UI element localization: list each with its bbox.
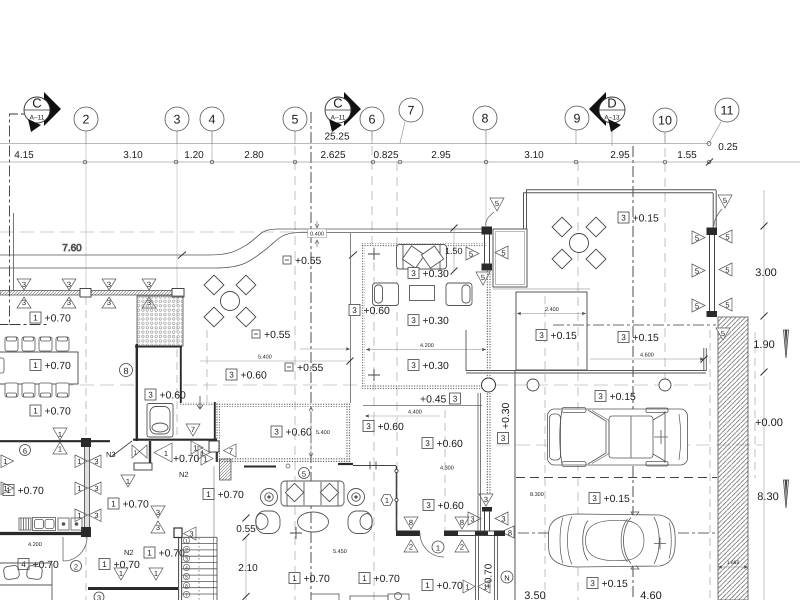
svg-text:1: 1 [185, 538, 188, 544]
svg-text:+0.70: +0.70 [45, 361, 72, 372]
svg-text:5: 5 [292, 113, 299, 127]
svg-text:+0.15: +0.15 [633, 214, 660, 225]
svg-text:1: 1 [102, 560, 107, 569]
svg-text:8: 8 [460, 518, 464, 527]
svg-text:N2: N2 [124, 548, 134, 557]
svg-text:+0.15: +0.15 [551, 331, 578, 342]
svg-text:+0.70: +0.70 [304, 574, 331, 585]
svg-text:3: 3 [411, 361, 416, 370]
svg-text:N3: N3 [106, 450, 116, 459]
svg-text:+0.15: +0.15 [604, 494, 631, 505]
svg-text:+0.30: +0.30 [501, 402, 512, 429]
svg-text:2: 2 [460, 543, 464, 552]
svg-text:3.50: 3.50 [524, 590, 545, 600]
svg-text:2.95: 2.95 [610, 150, 630, 161]
svg-text:+0.00: +0.00 [755, 417, 783, 429]
svg-text:3: 3 [425, 439, 430, 448]
svg-text:8.300: 8.300 [530, 492, 544, 498]
svg-text:1: 1 [436, 544, 440, 553]
svg-text:+0.30: +0.30 [423, 316, 450, 327]
svg-text:6: 6 [369, 113, 376, 127]
svg-text:3.10: 3.10 [524, 150, 544, 161]
svg-text:1: 1 [77, 484, 81, 493]
svg-text:4: 4 [21, 560, 26, 569]
svg-text:+0.55: +0.55 [297, 363, 324, 374]
svg-text:1: 1 [425, 581, 430, 590]
svg-text:+0.70: +0.70 [159, 549, 186, 560]
svg-text:8: 8 [482, 112, 489, 126]
svg-text:4: 4 [185, 565, 188, 571]
svg-text:8.30: 8.30 [757, 491, 778, 503]
svg-text:3: 3 [97, 594, 101, 600]
svg-text:1: 1 [33, 407, 38, 416]
svg-text:1: 1 [154, 569, 158, 578]
svg-text:3: 3 [22, 298, 26, 307]
svg-text:5.450: 5.450 [333, 549, 347, 555]
svg-text:1: 1 [147, 549, 152, 558]
svg-text:+0.60: +0.60 [160, 391, 187, 402]
svg-text:4.200: 4.200 [420, 343, 434, 349]
svg-text:3: 3 [484, 495, 488, 504]
svg-text:1.50: 1.50 [445, 246, 463, 256]
svg-text:4.60: 4.60 [640, 590, 661, 600]
svg-text:8: 8 [409, 518, 413, 527]
svg-text:1: 1 [3, 484, 7, 493]
svg-text:3: 3 [107, 280, 111, 289]
svg-text:C: C [32, 96, 41, 111]
svg-text:3: 3 [94, 484, 98, 493]
svg-text:2: 2 [83, 113, 90, 127]
svg-text:2.400: 2.400 [545, 307, 559, 313]
svg-text:7: 7 [191, 425, 195, 434]
svg-text:1: 1 [362, 574, 367, 583]
svg-text:+0.15: +0.15 [633, 333, 660, 344]
svg-text:3.00: 3.00 [755, 267, 776, 279]
svg-text:1.20: 1.20 [184, 150, 204, 161]
svg-text:+0.70: +0.70 [45, 407, 72, 418]
svg-text:10: 10 [658, 114, 672, 128]
svg-text:3: 3 [598, 392, 603, 401]
svg-text:8: 8 [508, 529, 512, 538]
svg-text:3: 3 [426, 501, 431, 510]
svg-text:4.600: 4.600 [640, 353, 654, 359]
svg-text:+0.30: +0.30 [423, 361, 450, 372]
svg-text:5: 5 [725, 233, 729, 242]
svg-text:3: 3 [501, 515, 505, 524]
svg-text:1: 1 [58, 445, 62, 454]
svg-text:+0.70: +0.70 [114, 560, 141, 571]
svg-text:3: 3 [148, 391, 153, 400]
svg-text:+0.70: +0.70 [218, 490, 245, 501]
svg-text:3: 3 [174, 113, 181, 127]
svg-text:4: 4 [209, 113, 216, 127]
svg-text:0.55: 0.55 [236, 524, 256, 535]
svg-text:2: 2 [74, 563, 78, 572]
svg-text:3: 3 [352, 306, 357, 315]
svg-text:8: 8 [123, 366, 128, 376]
svg-text:5: 5 [721, 329, 725, 338]
svg-text:+0.55: +0.55 [295, 256, 322, 267]
svg-text:5: 5 [302, 470, 306, 479]
svg-text:1: 1 [77, 511, 81, 520]
svg-text:0.825: 0.825 [373, 150, 398, 161]
svg-text:3: 3 [22, 280, 26, 289]
svg-text:2.80: 2.80 [244, 150, 264, 161]
svg-text:1: 1 [33, 314, 38, 323]
svg-text:1: 1 [33, 361, 38, 370]
svg-text:1: 1 [465, 583, 469, 592]
svg-text:2.95: 2.95 [431, 150, 451, 161]
svg-text:2.10: 2.10 [238, 563, 258, 574]
svg-text:0.400: 0.400 [310, 232, 324, 238]
svg-text:+0.60: +0.60 [286, 428, 313, 439]
svg-text:0.25: 0.25 [718, 142, 738, 153]
svg-text:N: N [504, 574, 509, 583]
svg-text:5: 5 [695, 267, 699, 276]
svg-text:7: 7 [229, 447, 233, 456]
svg-text:3: 3 [67, 280, 71, 289]
svg-text:1: 1 [385, 496, 389, 505]
svg-text:+0.15: +0.15 [610, 392, 637, 403]
svg-text:+0.70: +0.70 [123, 500, 150, 511]
svg-text:6: 6 [23, 447, 27, 456]
svg-text:1.55: 1.55 [677, 150, 697, 161]
svg-text:3: 3 [156, 523, 160, 532]
svg-text:3: 3 [94, 511, 98, 520]
svg-text:4.200: 4.200 [28, 542, 42, 548]
svg-text:3: 3 [274, 428, 279, 437]
svg-text:+0.70: +0.70 [374, 574, 401, 585]
svg-text:2: 2 [409, 543, 413, 552]
svg-text:25.25: 25.25 [324, 132, 349, 143]
svg-text:1: 1 [126, 477, 130, 486]
svg-text:2: 2 [185, 547, 188, 553]
svg-text:+0.60: +0.60 [364, 306, 391, 317]
svg-text:5: 5 [695, 302, 699, 311]
svg-text:5: 5 [501, 249, 505, 258]
svg-text:1: 1 [193, 444, 197, 453]
svg-text:3.10: 3.10 [123, 150, 143, 161]
svg-text:6: 6 [185, 583, 188, 589]
svg-text:+0.15: +0.15 [602, 579, 629, 590]
svg-text:9: 9 [574, 112, 581, 126]
svg-text:C: C [333, 96, 342, 111]
svg-text:A–11: A–11 [331, 115, 346, 122]
svg-text:1: 1 [58, 430, 62, 439]
svg-text:3: 3 [621, 214, 626, 223]
svg-text:1.692: 1.692 [727, 560, 740, 566]
svg-text:3: 3 [501, 434, 506, 443]
svg-text:5: 5 [723, 196, 727, 205]
svg-text:3: 3 [229, 371, 234, 380]
svg-text:3: 3 [67, 298, 71, 307]
svg-text:3: 3 [592, 494, 597, 503]
svg-text:5: 5 [725, 301, 729, 310]
svg-text:5: 5 [481, 273, 485, 282]
svg-text:1: 1 [483, 583, 487, 592]
svg-text:+0.70: +0.70 [437, 581, 464, 592]
svg-text:7: 7 [185, 592, 188, 598]
svg-text:11: 11 [721, 104, 734, 118]
svg-text:3: 3 [411, 316, 416, 325]
svg-text:1: 1 [77, 457, 81, 466]
svg-text:+0.45: +0.45 [420, 395, 447, 406]
svg-text:3: 3 [185, 556, 188, 562]
svg-text:5: 5 [495, 199, 499, 208]
svg-text:+0.30: +0.30 [423, 269, 450, 280]
svg-text:+0.70: +0.70 [173, 454, 200, 465]
svg-text:+0.60: +0.60 [378, 422, 405, 433]
svg-text:+0.55: +0.55 [264, 330, 291, 341]
svg-text:4.15: 4.15 [14, 150, 34, 161]
svg-text:N2: N2 [179, 470, 189, 479]
svg-text:7: 7 [408, 104, 415, 118]
svg-text:+0.60: +0.60 [437, 439, 464, 450]
svg-text:+0.70: +0.70 [33, 560, 60, 571]
svg-text:3: 3 [411, 269, 416, 278]
svg-text:3: 3 [94, 457, 98, 466]
svg-text:5.400: 5.400 [316, 430, 330, 436]
svg-text:+0.60: +0.60 [438, 501, 465, 512]
svg-text:3: 3 [539, 331, 544, 340]
svg-text:3: 3 [107, 298, 111, 307]
svg-text:5: 5 [185, 574, 188, 580]
svg-text:A–13: A–13 [604, 115, 620, 122]
svg-text:+0.60: +0.60 [241, 371, 268, 382]
svg-text:1: 1 [164, 449, 168, 458]
svg-text:3: 3 [590, 579, 595, 588]
svg-text:+0.70: +0.70 [18, 486, 45, 497]
svg-text:1: 1 [200, 449, 204, 458]
svg-text:2.625: 2.625 [320, 150, 345, 161]
svg-text:1: 1 [206, 490, 211, 499]
svg-text:5: 5 [695, 234, 699, 243]
svg-text:5.400: 5.400 [258, 355, 272, 361]
svg-text:A–11: A–11 [30, 115, 45, 122]
svg-text:7.60: 7.60 [62, 243, 82, 254]
svg-text:3: 3 [156, 508, 160, 517]
svg-text:4.300: 4.300 [440, 466, 454, 472]
svg-text:1: 1 [119, 569, 123, 578]
svg-text:5: 5 [725, 266, 729, 275]
svg-text:1: 1 [111, 500, 116, 509]
svg-text:3: 3 [147, 280, 151, 289]
svg-text:1: 1 [292, 574, 297, 583]
svg-text:1: 1 [3, 457, 7, 466]
svg-text:+0.70: +0.70 [45, 314, 72, 325]
svg-text:3: 3 [453, 395, 458, 404]
svg-text:D: D [607, 96, 616, 111]
svg-text:3: 3 [470, 515, 474, 524]
svg-text:3: 3 [621, 333, 626, 342]
svg-text:4.400: 4.400 [408, 410, 422, 416]
svg-text:5: 5 [469, 250, 473, 259]
svg-text:3: 3 [366, 422, 371, 431]
